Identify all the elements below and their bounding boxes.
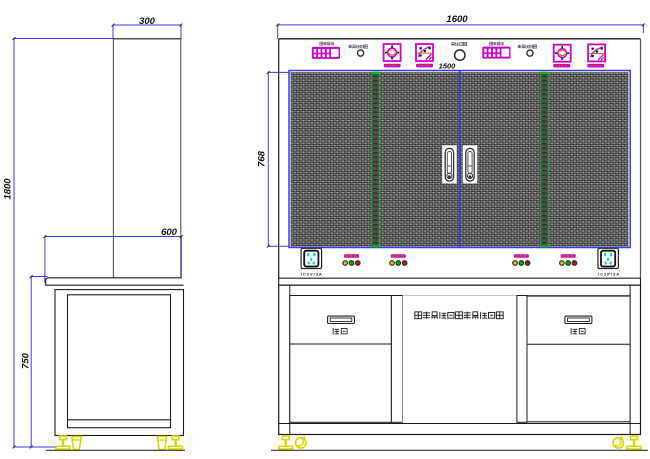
svg-text:768: 768 bbox=[257, 150, 268, 167]
svg-text:1600: 1600 bbox=[446, 14, 468, 25]
svg-text:1500: 1500 bbox=[439, 62, 457, 71]
svg-text:1800: 1800 bbox=[3, 178, 14, 200]
svg-text:IC3V/3A: IC3V/3A bbox=[301, 272, 322, 277]
svg-text:300: 300 bbox=[139, 16, 156, 27]
svg-text:IC2P/3A: IC2P/3A bbox=[598, 272, 619, 277]
svg-text:600: 600 bbox=[161, 227, 178, 238]
svg-text:750: 750 bbox=[21, 352, 32, 369]
